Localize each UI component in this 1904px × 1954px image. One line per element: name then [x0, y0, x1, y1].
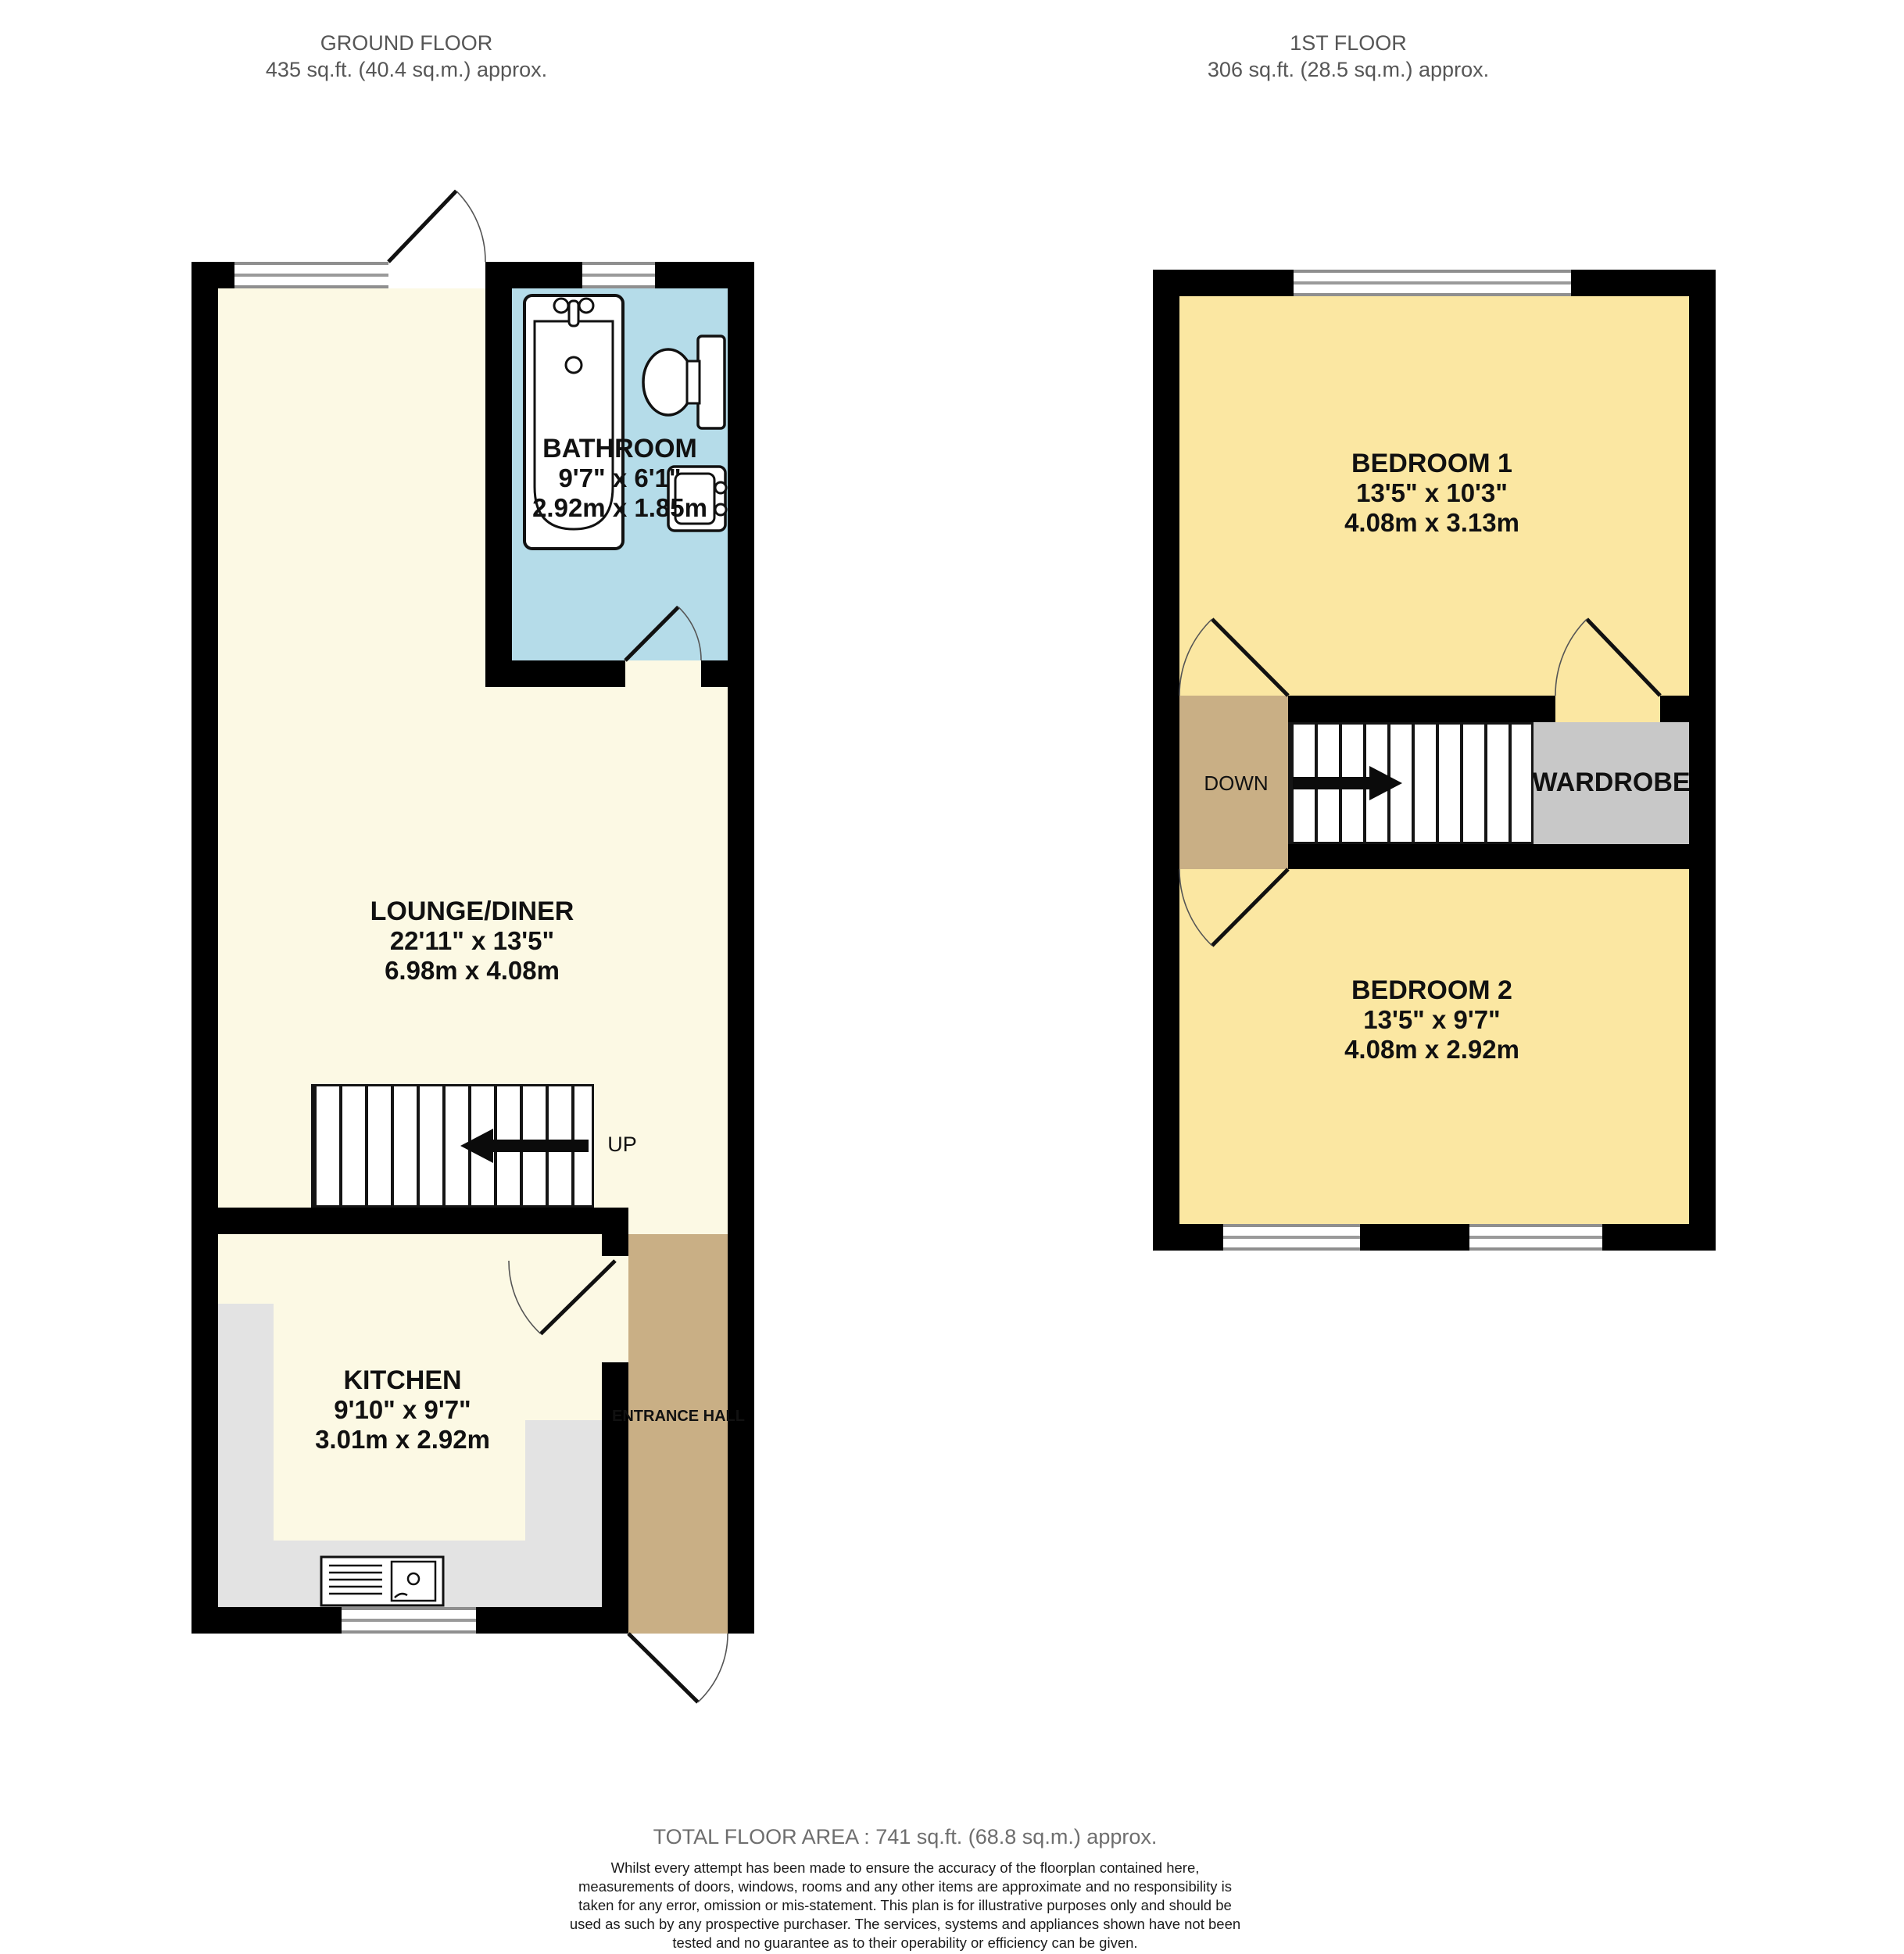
- bedroom1-metric: 4.08m x 3.13m: [1197, 508, 1666, 538]
- bathroom-metric: 2.92m x 1.85m: [512, 493, 728, 523]
- down-arrow-icon: [1369, 766, 1402, 800]
- bathroom-door-icon: [625, 586, 701, 660]
- landing-door-gap-bottom: [1179, 844, 1288, 869]
- ground-floor-subtitle: 435 sq.ft. (40.4 sq.m.) approx.: [125, 56, 688, 83]
- kitchen-door-icon: [509, 1261, 615, 1362]
- bedroom2-top-wall: [1288, 844, 1689, 869]
- down-label: DOWN: [1179, 771, 1293, 796]
- total-floor-area: TOTAL FLOOR AREA : 741 sq.ft. (68.8 sq.m…: [561, 1825, 1249, 1849]
- lounge-top-door-icon: [388, 163, 485, 262]
- lounge-imperial: 22'11" x 13'5": [238, 926, 707, 956]
- bedroom1-bottom-wall: [1288, 696, 1555, 722]
- bedroom2-name: BEDROOM 2: [1197, 975, 1666, 1005]
- lounge-label: LOUNGE/DINER 22'11" x 13'5" 6.98m x 4.08…: [238, 896, 707, 986]
- bedroom2-metric: 4.08m x 2.92m: [1197, 1035, 1666, 1065]
- floorplan-canvas: GROUND FLOOR 435 sq.ft. (40.4 sq.m.) app…: [0, 0, 1904, 1954]
- first-floor-plan: DOWN WARDROBE BEDROOM 1: [1153, 270, 1716, 1251]
- bedroom1-name: BEDROOM 1: [1197, 449, 1666, 478]
- front-door-gap: [628, 1607, 728, 1634]
- lounge-top-window: [234, 262, 388, 288]
- bedroom1-imperial: 13'5" x 10'3": [1197, 478, 1666, 508]
- lounge-top-door-gap: [388, 262, 485, 288]
- lounge-name: LOUNGE/DINER: [238, 896, 707, 926]
- bedroom2-label: BEDROOM 2 13'5" x 9'7" 4.08m x 2.92m: [1197, 975, 1666, 1065]
- bathroom-label: BATHROOM 9'7" x 6'1" 2.92m x 1.85m: [512, 434, 728, 523]
- down-arrow-shaft: [1293, 777, 1369, 789]
- ground-floor-plan: UP: [191, 262, 754, 1634]
- bedroom2-door-icon: [1179, 869, 1288, 975]
- bedroom2-window-right: [1469, 1224, 1602, 1251]
- bathroom-name: BATHROOM: [512, 434, 728, 463]
- kitchen-imperial: 9'10" x 9'7": [218, 1395, 587, 1425]
- front-door-icon: [628, 1634, 728, 1729]
- disclaimer-text: Whilst every attempt has been made to en…: [570, 1859, 1240, 1951]
- bathroom-imperial: 9'7" x 6'1": [512, 463, 728, 493]
- up-arrow-icon: [460, 1129, 493, 1163]
- hall-left-wall-bottom: [602, 1362, 628, 1607]
- bathroom-window: [582, 262, 655, 288]
- landing-door-gap-top: [1179, 696, 1288, 722]
- kitchen-window: [342, 1607, 476, 1634]
- hall-left-wall-top: [602, 1234, 628, 1256]
- kitchen-metric: 3.01m x 2.92m: [218, 1425, 587, 1455]
- wardrobe-label: WARDROBE: [1527, 768, 1695, 798]
- wardrobe-door-icon: [1555, 589, 1660, 696]
- bedroom2-window-left: [1223, 1224, 1360, 1251]
- toilet-icon: [639, 331, 728, 433]
- bedroom1-door-icon: [1179, 589, 1288, 696]
- kitchen-label: KITCHEN 9'10" x 9'7" 3.01m x 2.92m: [218, 1365, 587, 1455]
- bedroom1-bottom-wall-right: [1660, 696, 1689, 722]
- up-label: UP: [595, 1133, 650, 1157]
- first-floor-header: 1ST FLOOR 306 sq.ft. (28.5 sq.m.) approx…: [1067, 30, 1630, 83]
- disclaimer: Whilst every attempt has been made to en…: [561, 1859, 1249, 1954]
- kitchen-lounge-wall: [191, 1208, 628, 1234]
- kitchen-sink-icon: [320, 1555, 445, 1607]
- bedroom2-imperial: 13'5" x 9'7": [1197, 1005, 1666, 1035]
- entrance-hall-label: ENTRANCE HALL: [577, 1408, 780, 1426]
- bathroom-bottom-wall-corner: [701, 660, 728, 687]
- up-arrow-shaft: [493, 1140, 589, 1152]
- kitchen-name: KITCHEN: [218, 1365, 587, 1395]
- ground-floor-title: GROUND FLOOR: [125, 30, 688, 56]
- first-floor-subtitle: 306 sq.ft. (28.5 sq.m.) approx.: [1067, 56, 1630, 83]
- lounge-metric: 6.98m x 4.08m: [238, 956, 707, 986]
- ground-floor-header: GROUND FLOOR 435 sq.ft. (40.4 sq.m.) app…: [125, 30, 688, 83]
- bedroom1-window: [1294, 270, 1571, 296]
- bathroom-bottom-wall: [485, 660, 625, 687]
- bedroom1-label: BEDROOM 1 13'5" x 10'3" 4.08m x 3.13m: [1197, 449, 1666, 538]
- bathroom-left-wall: [485, 262, 512, 687]
- first-floor-title: 1ST FLOOR: [1067, 30, 1630, 56]
